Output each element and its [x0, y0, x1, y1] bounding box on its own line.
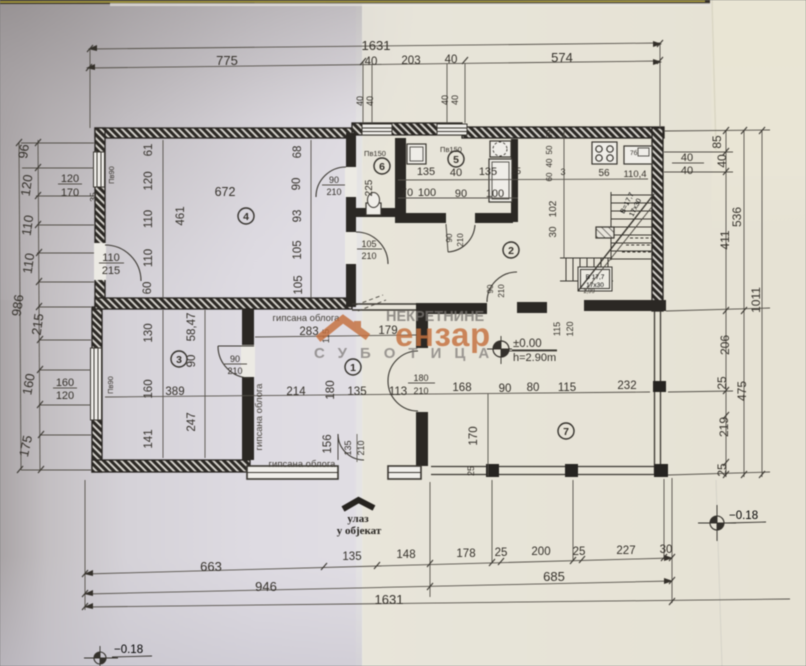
svg-text:105: 105 — [293, 275, 305, 294]
svg-text:170: 170 — [468, 426, 480, 445]
svg-text:672: 672 — [215, 185, 236, 199]
svg-text:1: 1 — [350, 362, 356, 374]
svg-text:40: 40 — [715, 154, 729, 168]
svg-text:120: 120 — [56, 390, 74, 402]
svg-text:160: 160 — [143, 379, 155, 398]
svg-text:113: 113 — [389, 386, 407, 398]
svg-text:115: 115 — [552, 322, 562, 336]
svg-text:80: 80 — [527, 382, 540, 394]
svg-text:210: 210 — [413, 386, 428, 396]
svg-text:гипсана облога: гипсана облога — [269, 459, 337, 470]
svg-text:50: 50 — [545, 145, 554, 154]
svg-text:461: 461 — [175, 206, 187, 225]
svg-text:110: 110 — [143, 249, 155, 267]
svg-text:475: 475 — [735, 381, 749, 401]
svg-text:гипсана облога: гипсана облога — [273, 313, 341, 324]
svg-text:40: 40 — [355, 96, 365, 106]
svg-text:25: 25 — [715, 376, 729, 390]
svg-text:120: 120 — [18, 174, 36, 198]
svg-text:90: 90 — [329, 175, 339, 185]
svg-text:775: 775 — [216, 53, 238, 68]
svg-text:4: 4 — [243, 211, 249, 223]
svg-text:h=2.90m: h=2.90m — [513, 352, 556, 364]
svg-text:135: 135 — [479, 166, 497, 178]
svg-text:100: 100 — [418, 187, 436, 199]
svg-text:156: 156 — [322, 434, 334, 453]
svg-text:Пв90: Пв90 — [106, 376, 115, 394]
svg-text:110: 110 — [102, 252, 120, 264]
svg-text:120: 120 — [61, 173, 79, 185]
svg-text:411: 411 — [718, 230, 732, 249]
svg-text:5: 5 — [453, 154, 459, 166]
svg-text:110: 110 — [20, 252, 38, 275]
svg-text:168: 168 — [452, 382, 471, 394]
svg-text:200: 200 — [531, 546, 550, 558]
svg-text:6: 6 — [379, 161, 385, 173]
svg-text:210: 210 — [326, 187, 341, 197]
svg-text:210: 210 — [356, 440, 366, 455]
svg-text:1,99: 1,99 — [583, 289, 595, 295]
svg-text:40: 40 — [445, 54, 458, 66]
svg-text:247: 247 — [186, 412, 198, 431]
svg-text:663: 663 — [200, 559, 222, 574]
svg-text:90: 90 — [499, 383, 512, 395]
svg-text:1011: 1011 — [749, 287, 763, 313]
svg-text:946: 946 — [255, 579, 277, 594]
svg-text:±0.00: ±0.00 — [513, 338, 542, 350]
svg-text:536: 536 — [730, 207, 744, 227]
svg-text:1631: 1631 — [362, 38, 391, 53]
svg-text:1631: 1631 — [375, 592, 404, 607]
svg-text:61: 61 — [143, 144, 155, 157]
svg-text:−0.18: −0.18 — [729, 510, 758, 522]
svg-text:93: 93 — [292, 210, 304, 223]
svg-text:7: 7 — [563, 426, 569, 438]
svg-text:283: 283 — [299, 326, 318, 338]
svg-text:30: 30 — [660, 544, 673, 556]
svg-text:Пв90: Пв90 — [107, 166, 116, 184]
svg-text:25: 25 — [466, 466, 476, 476]
svg-text:110: 110 — [143, 210, 155, 228]
svg-text:120: 120 — [565, 321, 575, 336]
svg-text:102: 102 — [548, 200, 559, 217]
svg-text:90: 90 — [186, 355, 198, 368]
svg-text:90: 90 — [230, 354, 240, 364]
svg-text:105: 105 — [292, 240, 304, 259]
svg-text:3: 3 — [176, 354, 182, 366]
svg-text:210: 210 — [497, 284, 506, 298]
svg-text:110: 110 — [19, 214, 37, 237]
svg-text:85: 85 — [710, 135, 724, 149]
svg-text:58,47: 58,47 — [186, 313, 198, 342]
svg-text:25: 25 — [573, 546, 586, 558]
svg-text:130: 130 — [143, 323, 155, 342]
svg-text:170: 170 — [61, 187, 79, 199]
svg-text:40: 40 — [545, 158, 554, 167]
svg-text:40: 40 — [681, 152, 693, 164]
svg-text:−0.18: −0.18 — [114, 644, 143, 656]
svg-text:206: 206 — [718, 335, 732, 355]
svg-text:25: 25 — [715, 463, 729, 477]
svg-text:120: 120 — [143, 171, 155, 190]
svg-text:135: 135 — [347, 386, 366, 398]
svg-text:986: 986 — [9, 294, 27, 318]
svg-text:7б: 7б — [630, 149, 638, 157]
svg-text:68: 68 — [292, 146, 304, 159]
svg-text:148: 148 — [396, 549, 415, 561]
svg-text:135: 135 — [417, 166, 435, 178]
svg-text:135: 135 — [342, 551, 361, 563]
svg-text:219: 219 — [717, 417, 731, 437]
svg-text:215: 215 — [102, 265, 120, 277]
svg-text:гипсана облога: гипсана облога — [254, 383, 265, 451]
svg-text:3: 3 — [560, 167, 565, 177]
svg-text:180: 180 — [413, 373, 428, 383]
svg-text:40: 40 — [440, 95, 450, 105]
svg-text:40: 40 — [450, 167, 462, 179]
svg-text:40: 40 — [365, 56, 378, 68]
svg-text:у објекат: у објекат — [337, 525, 382, 537]
svg-text:90: 90 — [486, 284, 495, 293]
svg-text:232: 232 — [617, 380, 636, 392]
svg-text:135: 135 — [343, 440, 353, 455]
svg-text:35: 35 — [88, 192, 98, 202]
svg-text:40: 40 — [450, 95, 460, 105]
svg-text:574: 574 — [551, 50, 573, 65]
svg-text:30: 30 — [548, 226, 559, 238]
svg-text:90: 90 — [455, 188, 467, 200]
svg-text:56: 56 — [598, 168, 610, 179]
svg-text:210: 210 — [456, 233, 465, 247]
svg-text:90: 90 — [291, 178, 303, 191]
svg-text:105: 105 — [361, 239, 376, 249]
svg-text:39: 39 — [545, 129, 554, 138]
svg-text:214: 214 — [286, 386, 306, 398]
svg-text:100: 100 — [486, 188, 504, 200]
svg-text:210: 210 — [361, 251, 376, 261]
svg-text:180: 180 — [325, 380, 337, 399]
svg-text:25: 25 — [495, 547, 508, 559]
svg-text:25: 25 — [511, 166, 521, 176]
svg-text:215: 215 — [29, 313, 47, 337]
svg-text:40: 40 — [681, 165, 693, 177]
svg-text:160: 160 — [56, 377, 74, 389]
svg-text:Пв150: Пв150 — [364, 149, 386, 158]
svg-text:улаз: улаз — [347, 513, 369, 525]
svg-text:203: 203 — [401, 55, 420, 67]
svg-text:115: 115 — [558, 382, 576, 394]
svg-text:178: 178 — [456, 548, 475, 560]
svg-text:40: 40 — [365, 96, 375, 106]
svg-text:2: 2 — [508, 245, 514, 257]
svg-text:141: 141 — [143, 429, 155, 448]
svg-text:227: 227 — [616, 545, 635, 557]
svg-text:90: 90 — [445, 233, 454, 242]
svg-text:СУБОТИЦА: СУБОТИЦА — [314, 345, 502, 362]
svg-text:96: 96 — [15, 143, 32, 159]
svg-text:70: 70 — [401, 187, 413, 199]
svg-text:685: 685 — [543, 569, 565, 584]
svg-text:210: 210 — [227, 366, 242, 376]
svg-text:60: 60 — [142, 282, 154, 295]
svg-text:110,4: 110,4 — [623, 169, 646, 180]
svg-text:389: 389 — [165, 386, 184, 398]
svg-text:60: 60 — [545, 172, 554, 181]
svg-text:225: 225 — [364, 179, 375, 196]
